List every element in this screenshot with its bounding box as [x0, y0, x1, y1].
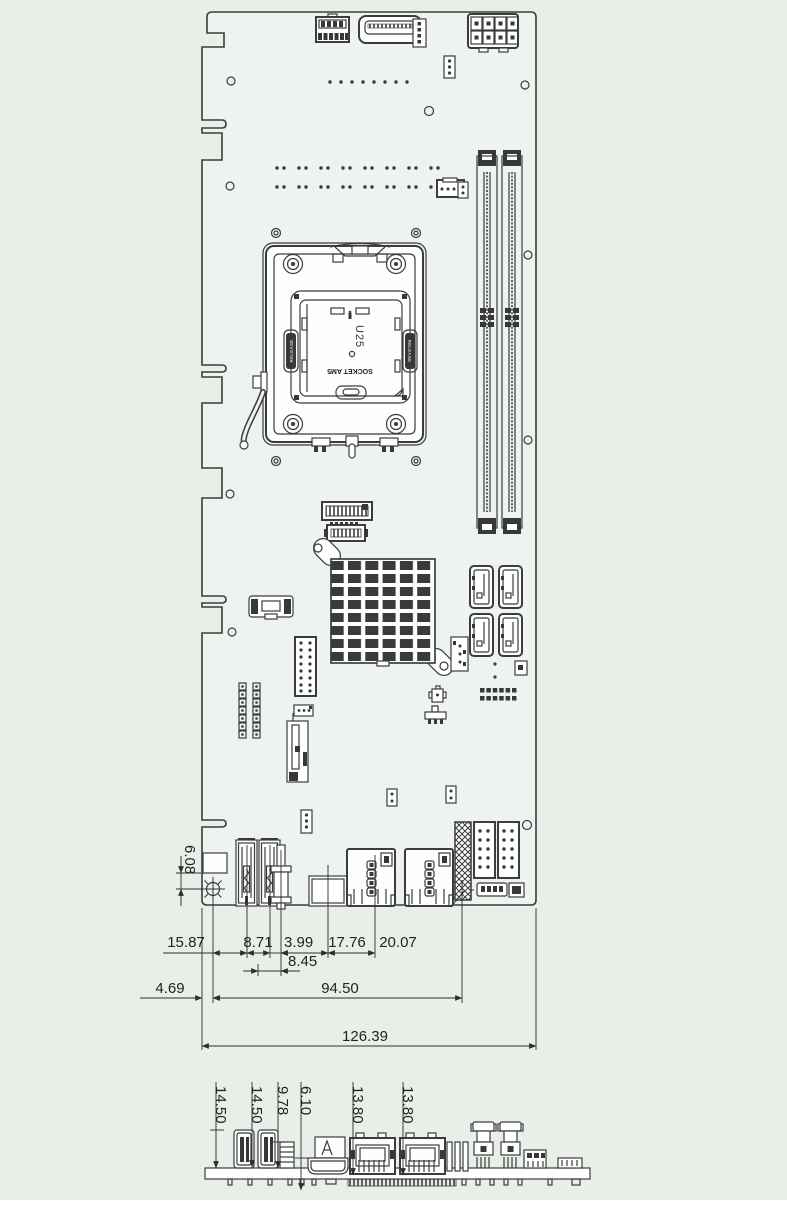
- sata-port-4: [499, 614, 522, 656]
- fpc-connector-2: [324, 522, 368, 541]
- dim-label-8-45: 8.45: [288, 953, 317, 970]
- dim-label-15-87: 15.87: [167, 934, 205, 951]
- front-panel-block-2: [498, 822, 519, 878]
- dim-label-side-14-50-b: 14.50: [248, 1086, 265, 1124]
- mini-connector: [249, 596, 293, 619]
- small-plug-connector: [509, 883, 524, 897]
- dim-label-side-14-50-a: 14.50: [212, 1086, 229, 1124]
- lan-port-side-2: [400, 1133, 445, 1174]
- usb-port-side-1: [234, 1130, 254, 1168]
- dim-label-94-50: 94.50: [321, 980, 359, 997]
- edge-component: [203, 853, 227, 873]
- dim-label-17-76: 17.76: [328, 934, 366, 951]
- pin-strip-side: [447, 1142, 468, 1171]
- socket-release-ear-left: RELEASE: [284, 330, 298, 372]
- dim-label-side-9-78: 9.78: [274, 1086, 291, 1115]
- 3pin-header-top: [444, 56, 455, 78]
- socket-release-label-right: RELEASE: [407, 340, 412, 363]
- 3pin-header-bottom: [301, 810, 312, 833]
- main-board-view: RELEASE RELEASE U25 SOCKET AM5: [201, 12, 536, 909]
- socket-release-label-left: RELEASE: [289, 340, 294, 363]
- usb-port-side-2: [258, 1130, 278, 1168]
- 3pin-fan-connector: [451, 637, 468, 671]
- dim-label-side-13-80-b: 13.80: [399, 1086, 416, 1124]
- 2pin-header-a: [387, 789, 397, 806]
- crosshatch-header: [455, 822, 471, 900]
- fpc-connector-1: [322, 502, 372, 520]
- dim-label-8-71: 8.71: [243, 934, 272, 951]
- 2pin-header-b: [446, 786, 456, 803]
- dim-label-3-99: 3.99: [284, 934, 313, 951]
- m2-vertical-slot: [287, 713, 308, 782]
- boxed-header-2x8: [295, 637, 316, 696]
- pcb-edge-strip: [205, 1168, 590, 1179]
- 2pin-header-dimm-side: [458, 182, 468, 198]
- dim-chain-row: 15.87 8.71 3.99 17.76 20.07: [163, 934, 417, 953]
- 4pin-header: [413, 19, 426, 47]
- 3pin-connector-mid: [294, 705, 313, 716]
- lan-port-2: [405, 849, 453, 906]
- sata-port-1: [470, 566, 493, 608]
- socket-release-ear-right: RELEASE: [403, 330, 417, 372]
- atx-power-connector: [468, 14, 518, 52]
- socket-designator: U25: [353, 325, 365, 348]
- dim-label-20-07: 20.07: [379, 934, 417, 951]
- lan-port-1: [347, 849, 395, 906]
- sata-port-3: [470, 614, 493, 656]
- board-outline: [202, 12, 536, 905]
- dim-label-4-69: 4.69: [155, 980, 184, 997]
- front-panel-block-1: [474, 822, 495, 878]
- sata-style-top-connector: [359, 16, 421, 43]
- small-box-component: [515, 661, 527, 675]
- dim-label-6-08: 6.08: [181, 845, 198, 874]
- usb-pin-header: [316, 14, 349, 42]
- header-2x5: [477, 883, 507, 896]
- cpu-socket: RELEASE RELEASE U25 SOCKET AM5: [240, 243, 426, 458]
- ridged-connector-side: [280, 1142, 294, 1168]
- board-technical-drawing: RELEASE RELEASE U25 SOCKET AM5: [0, 0, 787, 1200]
- io-connector-1: [236, 838, 257, 906]
- dim-label-126-39: 126.39: [342, 1028, 388, 1045]
- dim-label-side-6-10: 6.10: [297, 1086, 314, 1115]
- dim-label-side-13-80-a: 13.80: [349, 1086, 366, 1124]
- dense-pin-row: [348, 1179, 456, 1186]
- sata-port-2: [499, 566, 522, 608]
- socket-type-label: SOCKET AM5: [327, 367, 373, 374]
- lan-port-side-1: [350, 1133, 395, 1174]
